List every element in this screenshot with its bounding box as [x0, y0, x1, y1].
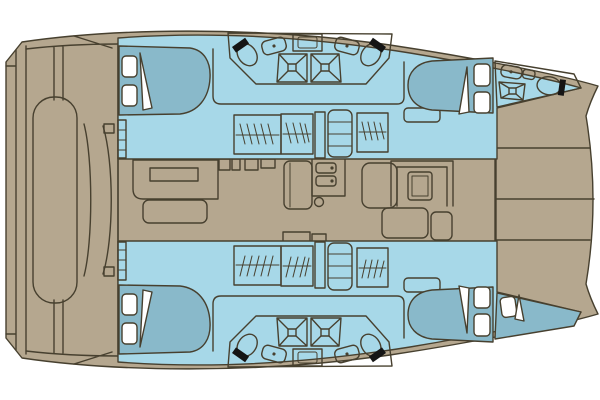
pillow — [474, 64, 490, 86]
floor-plan-canvas — [0, 0, 600, 400]
pillow — [500, 296, 518, 318]
catamaran-floor-plan — [0, 0, 600, 400]
forward-cabin — [408, 58, 493, 114]
pillow — [474, 92, 490, 113]
faucet-1 — [330, 166, 333, 169]
pillow — [122, 56, 137, 77]
pillow — [122, 85, 137, 106]
faucet-2 — [330, 179, 333, 182]
